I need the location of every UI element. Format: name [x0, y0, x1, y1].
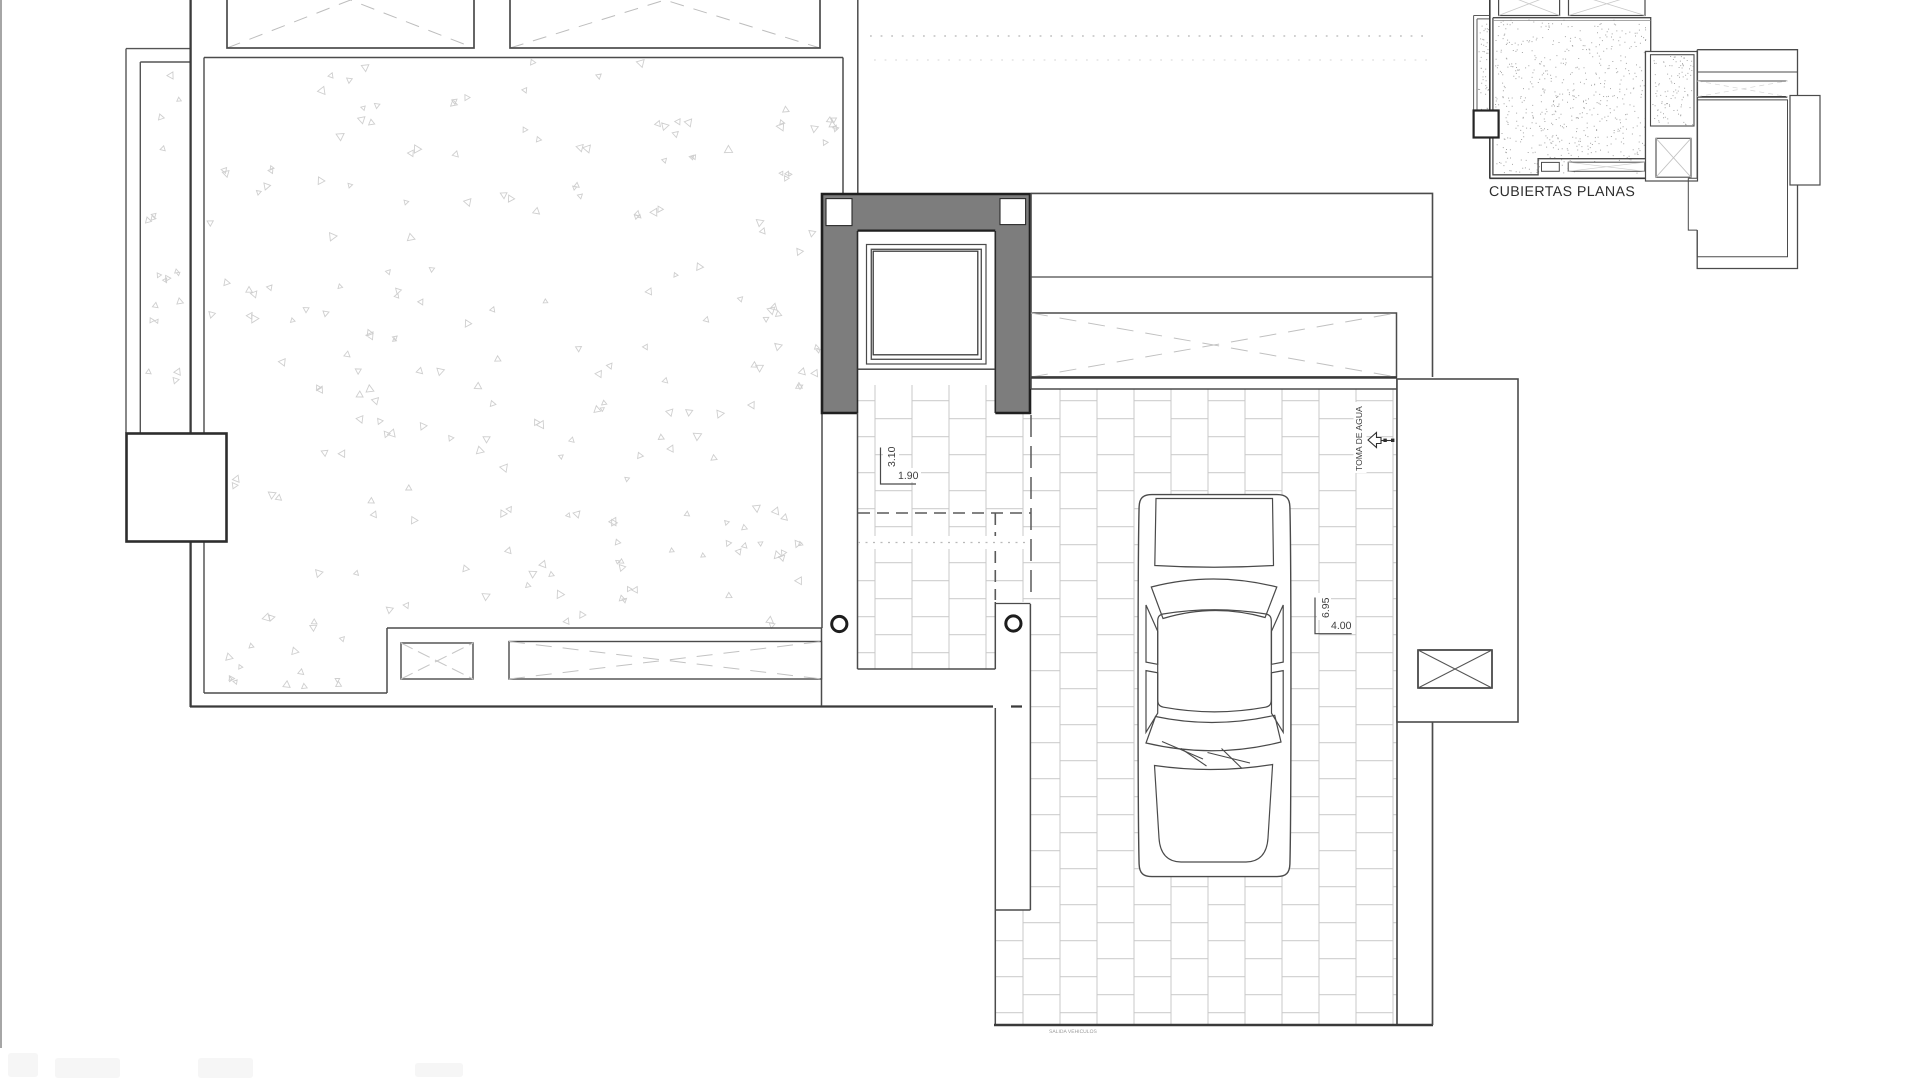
svg-text:CUBIERTAS PLANAS: CUBIERTAS PLANAS — [1489, 184, 1635, 200]
svg-text:3.10: 3.10 — [886, 446, 898, 467]
svg-text:TOMA DE AGUA: TOMA DE AGUA — [1354, 406, 1364, 471]
svg-text:SALIDA VEHICULOS: SALIDA VEHICULOS — [1049, 1029, 1097, 1035]
svg-text:6.95: 6.95 — [1320, 597, 1332, 618]
svg-text:1.90: 1.90 — [898, 470, 919, 482]
svg-text:4.00: 4.00 — [1331, 620, 1352, 632]
